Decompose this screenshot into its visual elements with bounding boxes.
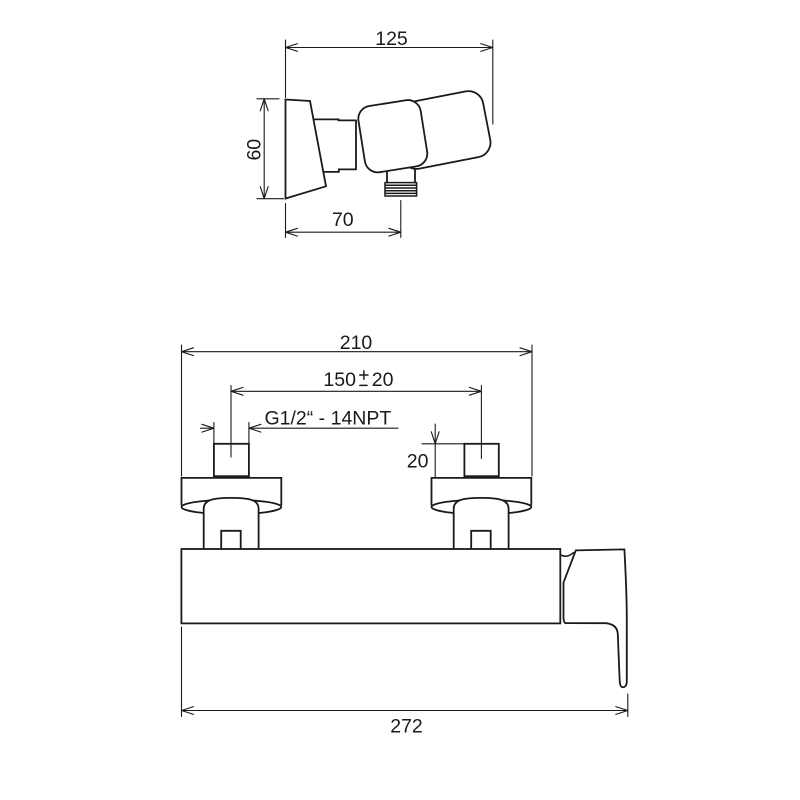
svg-text:60: 60 xyxy=(243,139,265,161)
svg-text:210: 210 xyxy=(340,332,373,354)
svg-text:150: 150 xyxy=(323,369,356,391)
svg-text:20: 20 xyxy=(372,369,394,391)
svg-text:272: 272 xyxy=(390,716,423,738)
svg-text:125: 125 xyxy=(375,28,408,50)
svg-text:20: 20 xyxy=(407,451,429,473)
svg-text:G1/2“ - 14NPT: G1/2“ - 14NPT xyxy=(265,407,392,429)
svg-text:70: 70 xyxy=(332,209,354,231)
